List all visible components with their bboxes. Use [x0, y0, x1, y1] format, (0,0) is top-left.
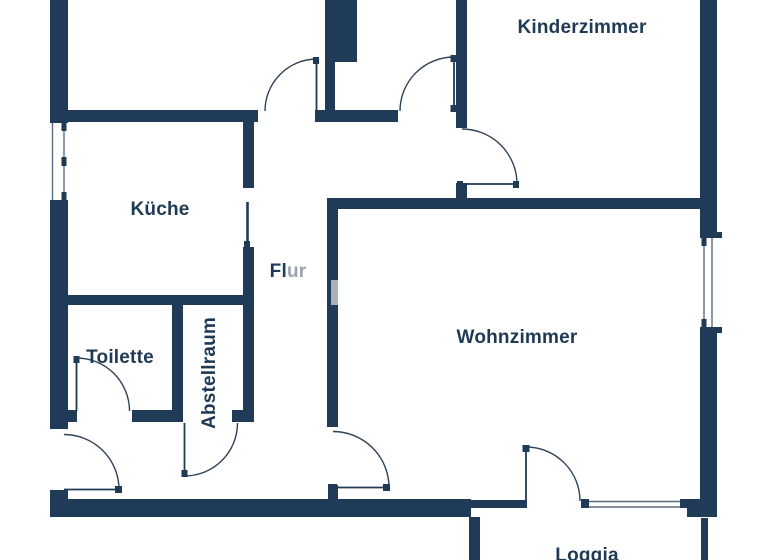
wall	[325, 62, 335, 111]
kueche-window-tick	[62, 123, 67, 131]
loggia-window-south-tick	[581, 499, 589, 508]
wall	[50, 110, 258, 122]
wohnzimmer-door-cap	[383, 484, 390, 491]
wall	[243, 110, 254, 188]
entrance-door-swing	[64, 435, 119, 490]
wall	[315, 110, 398, 122]
wohnzimmer-window-east-tick	[702, 319, 707, 327]
kinderzimmer-door-swing	[462, 129, 517, 184]
wall	[456, 0, 467, 128]
wall	[471, 500, 527, 508]
room-label-flur-dark: Fl	[270, 261, 287, 282]
wohnzimmer-window-east-gap	[700, 238, 717, 327]
wall	[700, 327, 722, 333]
abstellraum-door-swing	[185, 423, 238, 476]
room-label-flur: Flur	[270, 261, 307, 283]
wall	[325, 0, 357, 62]
room-label-abstellraum: Abstellraum	[199, 317, 221, 429]
kinderzimmer-door-cap	[457, 181, 463, 188]
wall	[50, 499, 471, 517]
top-left-room-door-swing	[265, 59, 317, 111]
wall	[327, 198, 338, 427]
loggia-window-south-tick	[680, 499, 689, 508]
wall-inset	[331, 280, 338, 305]
kueche-window-tick	[62, 157, 67, 166]
wohnzimmer-window-east-tick	[702, 238, 707, 246]
wall	[132, 410, 183, 422]
top-middle-room-door-swing	[400, 57, 454, 111]
room-label-kinderzimmer: Kinderzimmer	[517, 17, 646, 39]
wall	[50, 0, 68, 123]
kueche-window-tick	[62, 192, 67, 200]
wall	[700, 232, 722, 238]
floor-plan: Kinderzimmer Küche Flur Toilette Abstell…	[0, 0, 768, 560]
wall	[701, 518, 708, 560]
kueche-door-cap	[244, 241, 250, 247]
top-middle-room-door-cap	[451, 105, 458, 112]
abstellraum-door-cap	[182, 470, 188, 477]
wall	[50, 295, 254, 305]
top-left-room-door-cap	[313, 57, 319, 64]
wall	[700, 327, 717, 517]
wall	[327, 198, 700, 209]
room-label-kueche: Küche	[130, 199, 189, 221]
room-label-wohnzimmer: Wohnzimmer	[457, 327, 578, 349]
wall	[172, 305, 183, 410]
wohnzimmer-door-cap	[328, 484, 337, 491]
loggia-door-swing	[526, 447, 580, 501]
top-middle-room-door-cap	[451, 55, 458, 62]
wall	[700, 0, 717, 238]
wall	[469, 517, 480, 560]
wall	[232, 410, 254, 422]
loggia-door-cap	[523, 445, 530, 452]
wohnzimmer-door-swing	[333, 432, 389, 488]
wall	[68, 410, 77, 422]
room-label-toilette: Toilette	[86, 347, 154, 369]
floorplan-geometry	[0, 0, 768, 560]
room-label-flur-muted: ur	[287, 261, 306, 282]
entrance-door-cap	[115, 486, 122, 493]
wall	[50, 200, 68, 429]
toilette-door-cap	[74, 356, 80, 363]
room-label-loggia: Loggia	[555, 545, 618, 560]
wall	[243, 247, 254, 412]
kinderzimmer-door-cap	[513, 181, 519, 188]
